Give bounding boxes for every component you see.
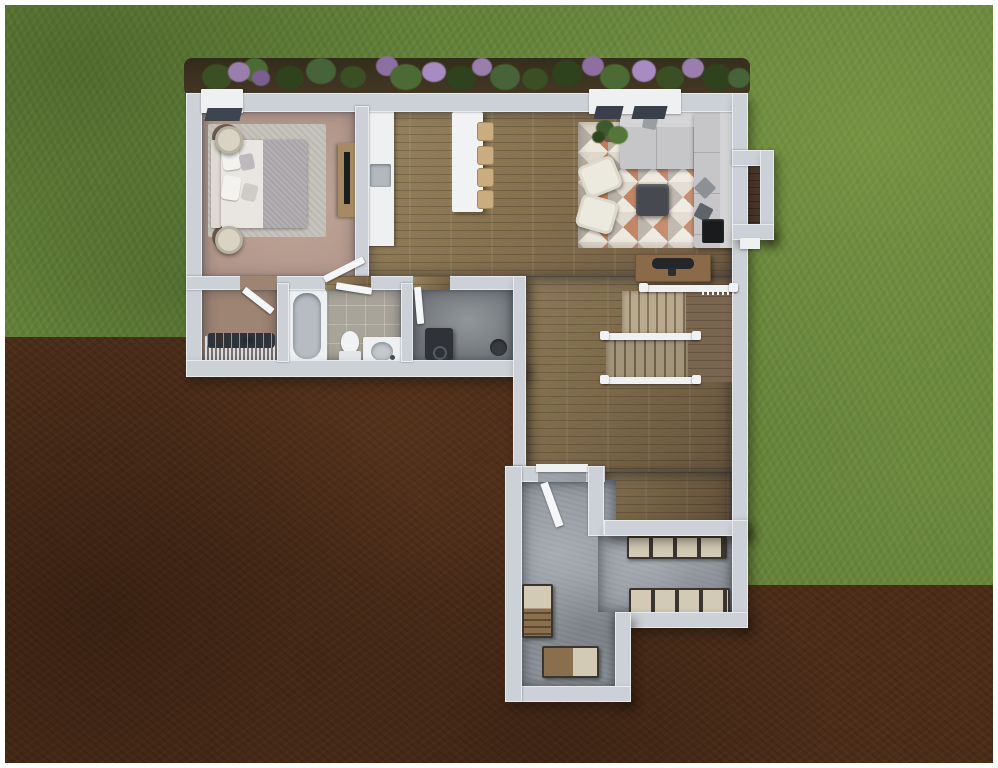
storage-shelf	[629, 588, 730, 614]
plant	[592, 131, 605, 143]
bush	[390, 64, 422, 90]
flower-cluster	[252, 70, 270, 86]
kitchen-sink	[370, 164, 391, 187]
wall-garage-left	[505, 466, 522, 702]
railing-post	[600, 375, 609, 384]
bush	[276, 66, 304, 90]
wall-mudroom-hall	[513, 276, 526, 474]
stair-railing-bottom	[603, 377, 700, 384]
wall-closet-bath	[277, 283, 289, 362]
storage-shelf	[627, 536, 727, 559]
table-lamp	[215, 126, 243, 154]
wall-garage-stub	[588, 466, 604, 536]
utility-unit	[522, 584, 553, 638]
plant	[608, 126, 628, 144]
bar-stool	[477, 190, 494, 209]
bush	[340, 66, 366, 88]
ottoman	[636, 184, 669, 216]
flower-cluster	[472, 58, 492, 76]
wall-garage-bottom-right	[615, 612, 748, 628]
flower-cluster	[228, 62, 250, 82]
bush	[306, 58, 336, 84]
bathtub-basin	[293, 293, 321, 359]
tv-screen	[344, 152, 350, 204]
bedroom-window-pane	[204, 108, 242, 121]
utility-box-dial	[433, 346, 447, 360]
bar-stool	[477, 146, 494, 165]
bed-pillow	[220, 175, 241, 201]
table-lamp	[215, 226, 243, 254]
workbench	[542, 646, 599, 678]
flower-cluster	[422, 62, 446, 82]
wall-hall-bottom	[604, 520, 748, 536]
living-window-pane	[593, 106, 623, 119]
floor-drain	[490, 339, 507, 356]
bush	[522, 68, 548, 90]
railing-post	[639, 283, 648, 292]
bush	[656, 66, 684, 90]
bush	[728, 68, 750, 88]
wall-garage-bottom	[505, 686, 631, 702]
toilet-bowl	[341, 331, 359, 353]
bar-stool	[477, 122, 494, 141]
exterior-ledge	[740, 238, 760, 249]
bed-comforter	[263, 140, 307, 228]
wall-bottom-left-section	[186, 360, 526, 377]
stair-upper-flight	[622, 291, 686, 335]
fireplace	[702, 219, 724, 243]
stair-lower-flight	[606, 340, 688, 380]
garage-door-casing	[536, 464, 588, 472]
bush	[202, 64, 232, 90]
wall-left	[186, 93, 202, 377]
wall-bedroom-kitchen	[355, 106, 369, 280]
living-window-pane	[631, 106, 667, 119]
wall-bath-mudroom	[401, 283, 413, 362]
flower-cluster	[632, 60, 656, 82]
bar-stool	[477, 168, 494, 187]
railing-post	[692, 375, 701, 384]
bed-headboard	[211, 140, 221, 228]
railing-post	[692, 331, 701, 340]
floor-plan-rendering	[0, 0, 998, 768]
bush	[600, 64, 630, 90]
railing-post	[600, 331, 609, 340]
bush	[552, 60, 582, 86]
flower-cluster	[682, 58, 704, 78]
bush	[490, 64, 520, 90]
stair-railing-mid	[603, 333, 700, 340]
bed-pillow	[238, 153, 255, 172]
hanging-clothes	[207, 333, 275, 348]
console-decor-base	[668, 268, 676, 276]
railing-post	[729, 283, 738, 292]
